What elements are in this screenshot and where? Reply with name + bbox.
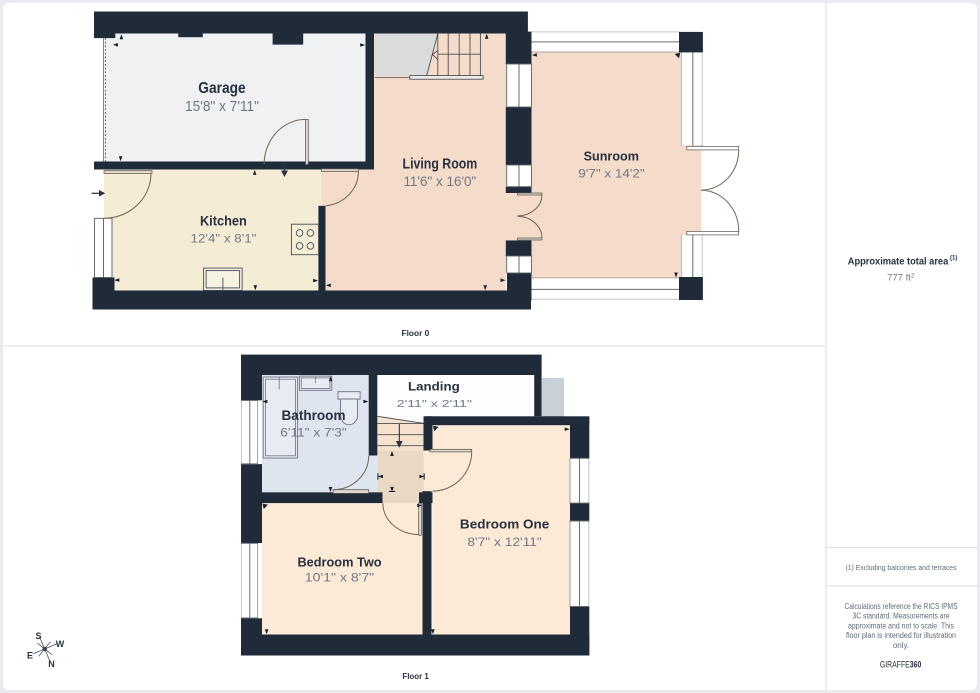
svg-text:N: N <box>48 659 55 669</box>
svg-text:Living Room: Living Room <box>403 157 478 173</box>
svg-text:floor plan is intended for ill: floor plan is intended for illustration <box>846 631 956 640</box>
svg-text:8'7" x 12'11": 8'7" x 12'11" <box>467 537 541 549</box>
svg-text:15'8" x 7'11": 15'8" x 7'11" <box>185 98 259 115</box>
svg-text:2'11" x 2'11": 2'11" x 2'11" <box>397 398 472 410</box>
svg-text:Kitchen: Kitchen <box>200 214 247 229</box>
svg-text:9'7" x 14'2": 9'7" x 14'2" <box>578 169 644 181</box>
svg-text:6'11" x 7'3": 6'11" x 7'3" <box>280 428 346 440</box>
svg-text:Sunroom: Sunroom <box>584 148 639 163</box>
svg-text:Bedroom One: Bedroom One <box>460 516 549 531</box>
svg-text:11'6" x 16'0": 11'6" x 16'0" <box>403 173 476 189</box>
svg-text:Bedroom Two: Bedroom Two <box>297 555 381 570</box>
svg-text:Bathroom: Bathroom <box>282 408 346 423</box>
svg-text:approximate and not to scale.: approximate and not to scale. This <box>848 621 954 630</box>
svg-text:only.: only. <box>893 641 909 650</box>
svg-text:W: W <box>56 639 65 649</box>
svg-text:Calculations reference the RIC: Calculations reference the RICS IPMS <box>845 602 958 611</box>
svg-text:GIRAFFE360: GIRAFFE360 <box>880 659 922 669</box>
svg-text:Floor 1: Floor 1 <box>402 672 429 681</box>
svg-text:(1): (1) <box>950 256 957 262</box>
svg-text:777 ft: 777 ft <box>887 272 911 283</box>
svg-text:Floor 0: Floor 0 <box>402 329 430 338</box>
svg-text:S: S <box>35 631 41 641</box>
svg-text:Garage: Garage <box>198 80 245 97</box>
svg-text:12'4" x 8'1": 12'4" x 8'1" <box>191 234 257 246</box>
svg-text:Landing: Landing <box>408 380 460 394</box>
svg-text:E: E <box>27 651 33 661</box>
svg-text:10'1" x 8'7": 10'1" x 8'7" <box>305 572 374 584</box>
svg-text:2: 2 <box>911 272 915 279</box>
svg-text:Approximate total area: Approximate total area <box>848 256 949 267</box>
svg-text:(1) Excluding balconies and te: (1) Excluding balconies and terraces <box>845 563 956 572</box>
svg-text:3C standard. Measurements are: 3C standard. Measurements are <box>853 612 950 621</box>
